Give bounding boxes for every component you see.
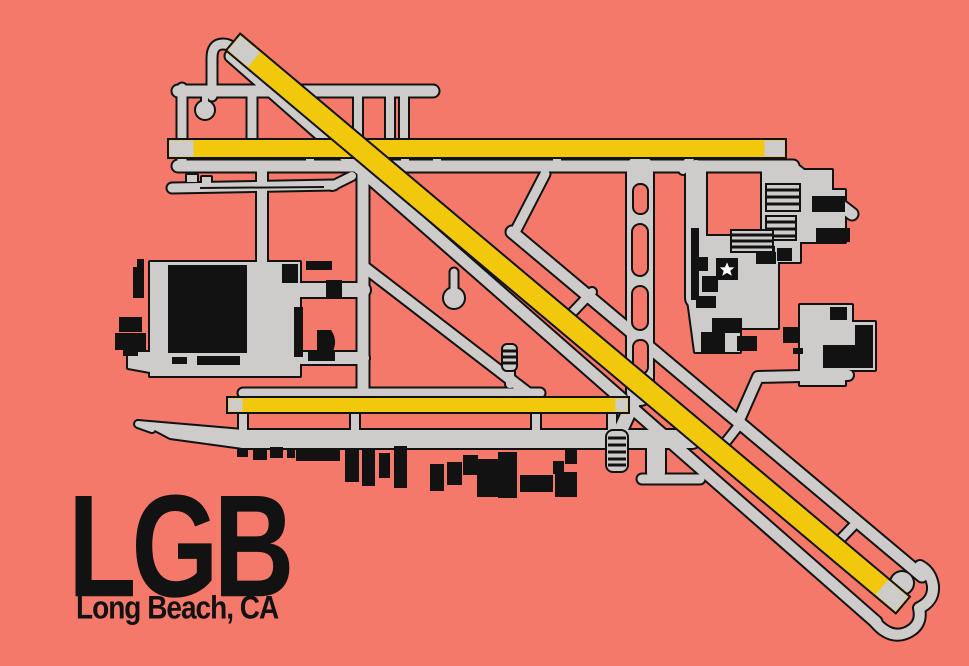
strip-slot [200, 187, 324, 188]
airport-location-subtitle: Long Beach, CA [76, 592, 278, 624]
runway-north [168, 139, 786, 158]
runup-pad-south [606, 430, 628, 472]
striped-hangar-ne-1 [766, 184, 800, 211]
runway-south [227, 397, 629, 413]
runup-pad-center [502, 344, 517, 371]
striped-hangar-terminal [731, 230, 773, 252]
poster: LGB Long Beach, CA [0, 0, 969, 666]
